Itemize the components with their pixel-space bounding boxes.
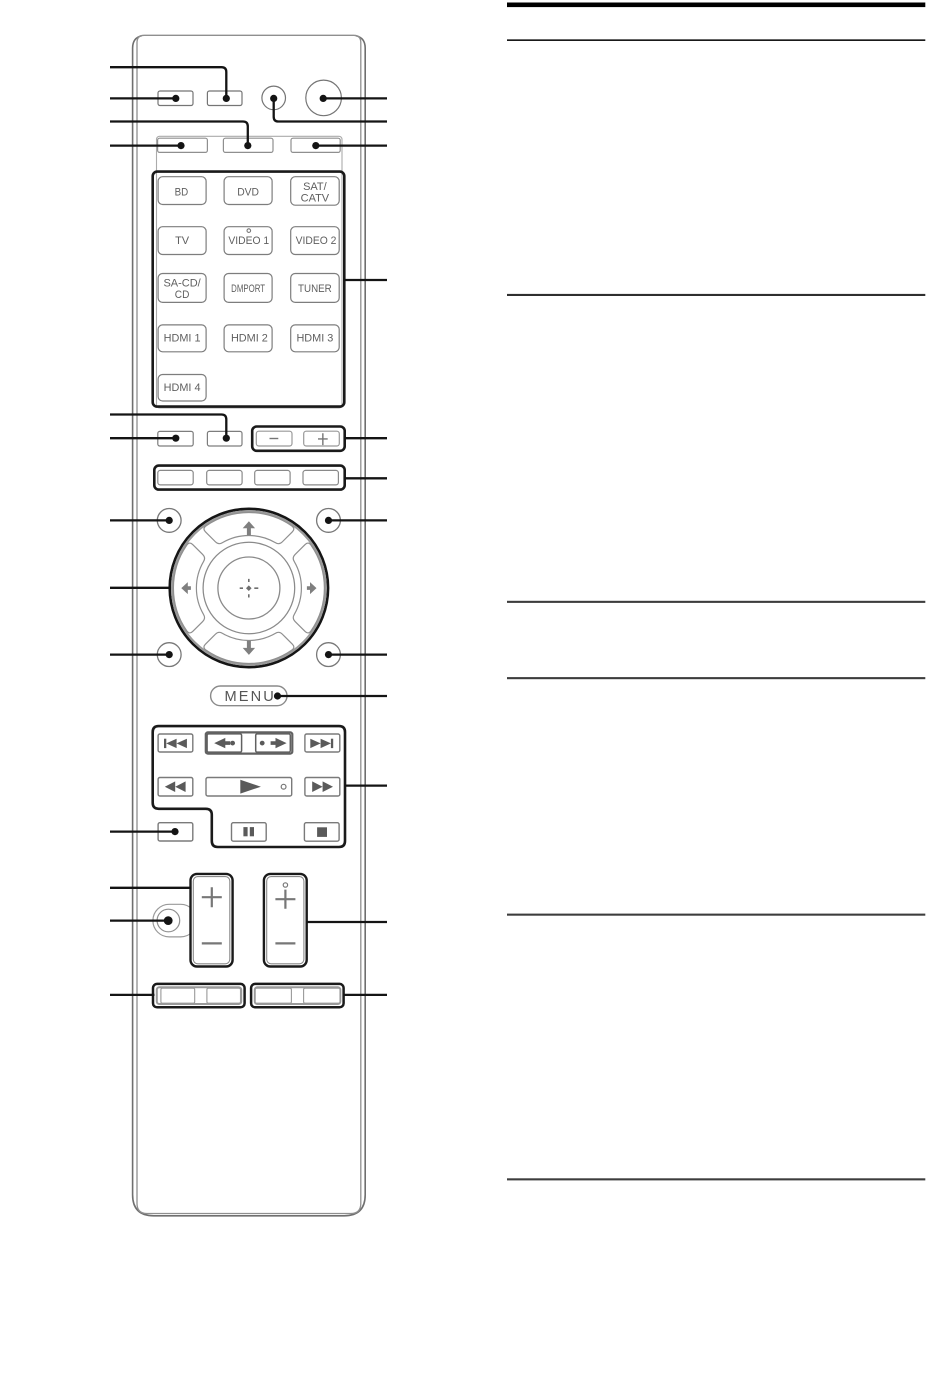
svg-text:SAT/: SAT/ [303,181,328,193]
svg-text:CD: CD [175,288,190,300]
svg-text:CATV: CATV [301,193,330,205]
svg-text:DVD: DVD [237,186,259,198]
svg-text:MENU: MENU [225,689,276,705]
svg-text:BD: BD [175,187,189,199]
svg-text:TV: TV [175,235,190,247]
svg-text:HDMI 3: HDMI 3 [296,333,333,345]
svg-text:DMPORT: DMPORT [231,283,265,296]
svg-text:TUNER: TUNER [298,284,332,296]
svg-text:HDMI 2: HDMI 2 [231,333,268,345]
svg-text:VIDEO 2: VIDEO 2 [296,235,337,247]
svg-text:VIDEO 1: VIDEO 1 [228,235,269,247]
svg-text:HDMI 1: HDMI 1 [164,333,201,345]
svg-text:HDMI 4: HDMI 4 [164,382,201,394]
